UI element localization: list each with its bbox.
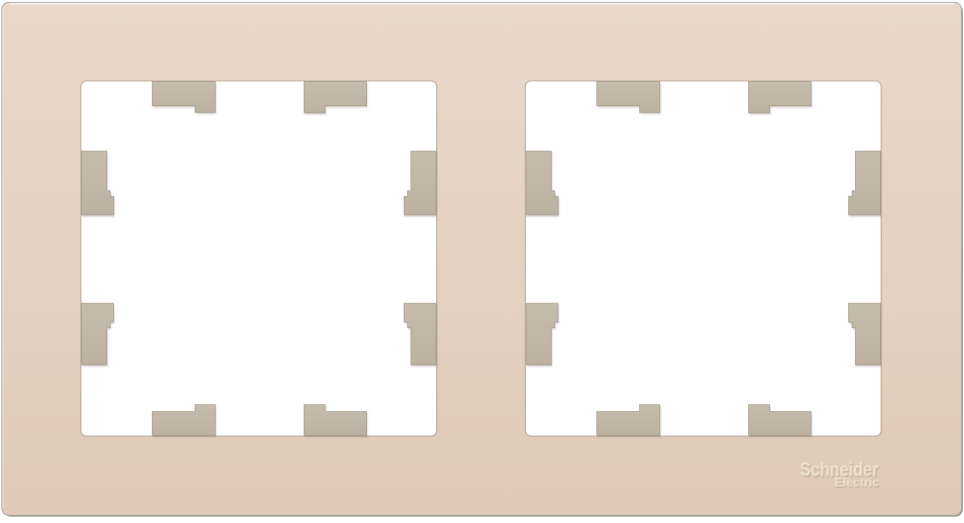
svg-text:Electric: Electric bbox=[835, 476, 880, 490]
